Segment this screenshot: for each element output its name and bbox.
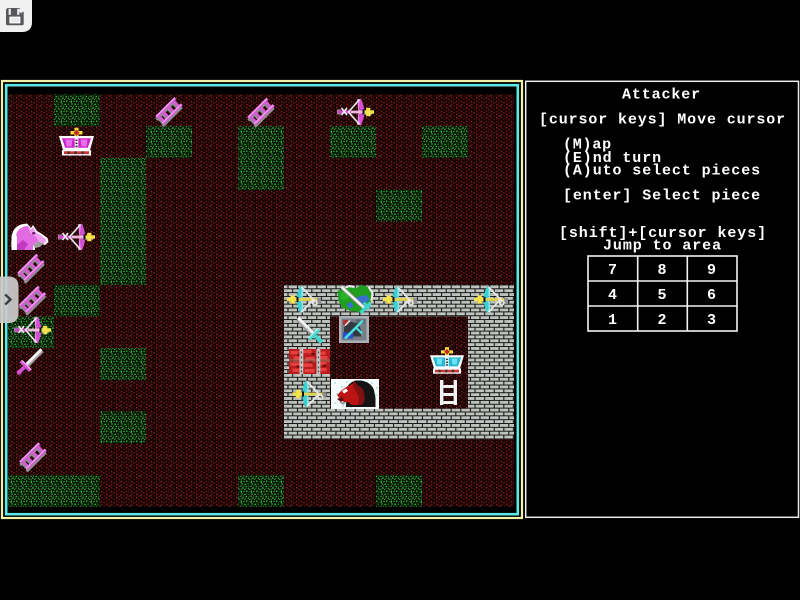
svg-text:1: 1: [608, 312, 618, 329]
svg-text:9: 9: [707, 262, 717, 279]
svg-text:5: 5: [658, 287, 668, 304]
svg-text:8: 8: [658, 262, 668, 279]
svg-text:2: 2: [658, 312, 668, 329]
svg-text:3: 3: [707, 312, 717, 329]
svg-text:7: 7: [608, 262, 618, 279]
svg-text:Attacker: Attacker: [622, 87, 701, 104]
svg-text:4: 4: [608, 287, 618, 304]
svg-text:(A)uto select pieces: (A)uto select pieces: [563, 162, 761, 179]
svg-text:Jump to area: Jump to area: [603, 237, 722, 254]
svg-text:6: 6: [707, 287, 717, 304]
svg-text:[enter] Select piece: [enter] Select piece: [563, 187, 761, 204]
svg-text:[cursor keys] Move cursor: [cursor keys] Move cursor: [539, 112, 786, 129]
